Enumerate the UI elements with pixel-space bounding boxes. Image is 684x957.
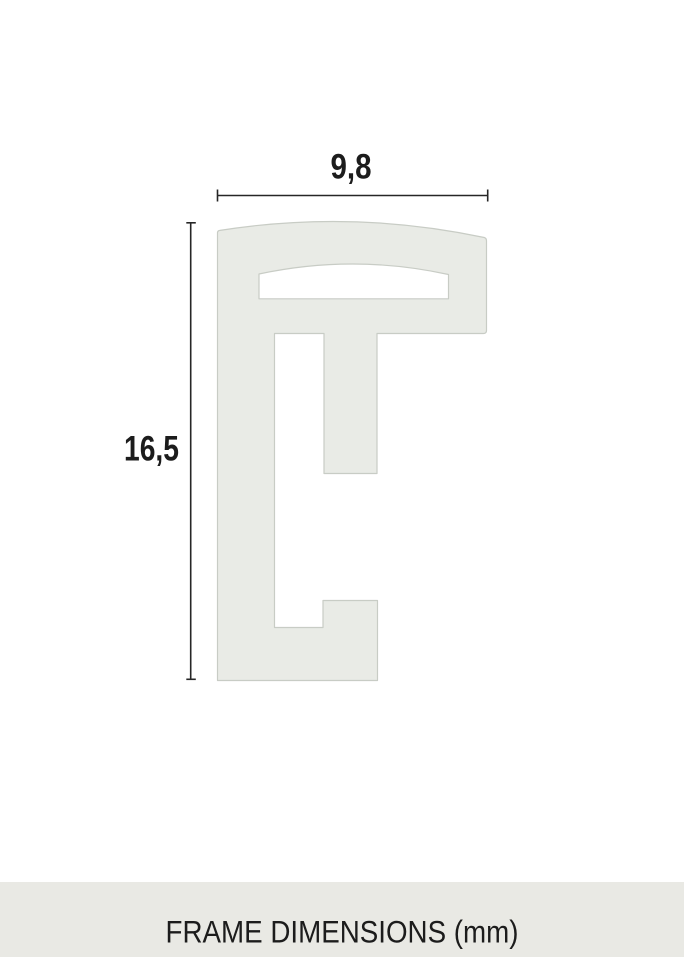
svg-text:9,8: 9,8 (331, 148, 372, 187)
svg-text:FRAME DIMENSIONS (mm): FRAME DIMENSIONS (mm) (166, 914, 519, 950)
svg-text:16,5: 16,5 (124, 430, 179, 469)
